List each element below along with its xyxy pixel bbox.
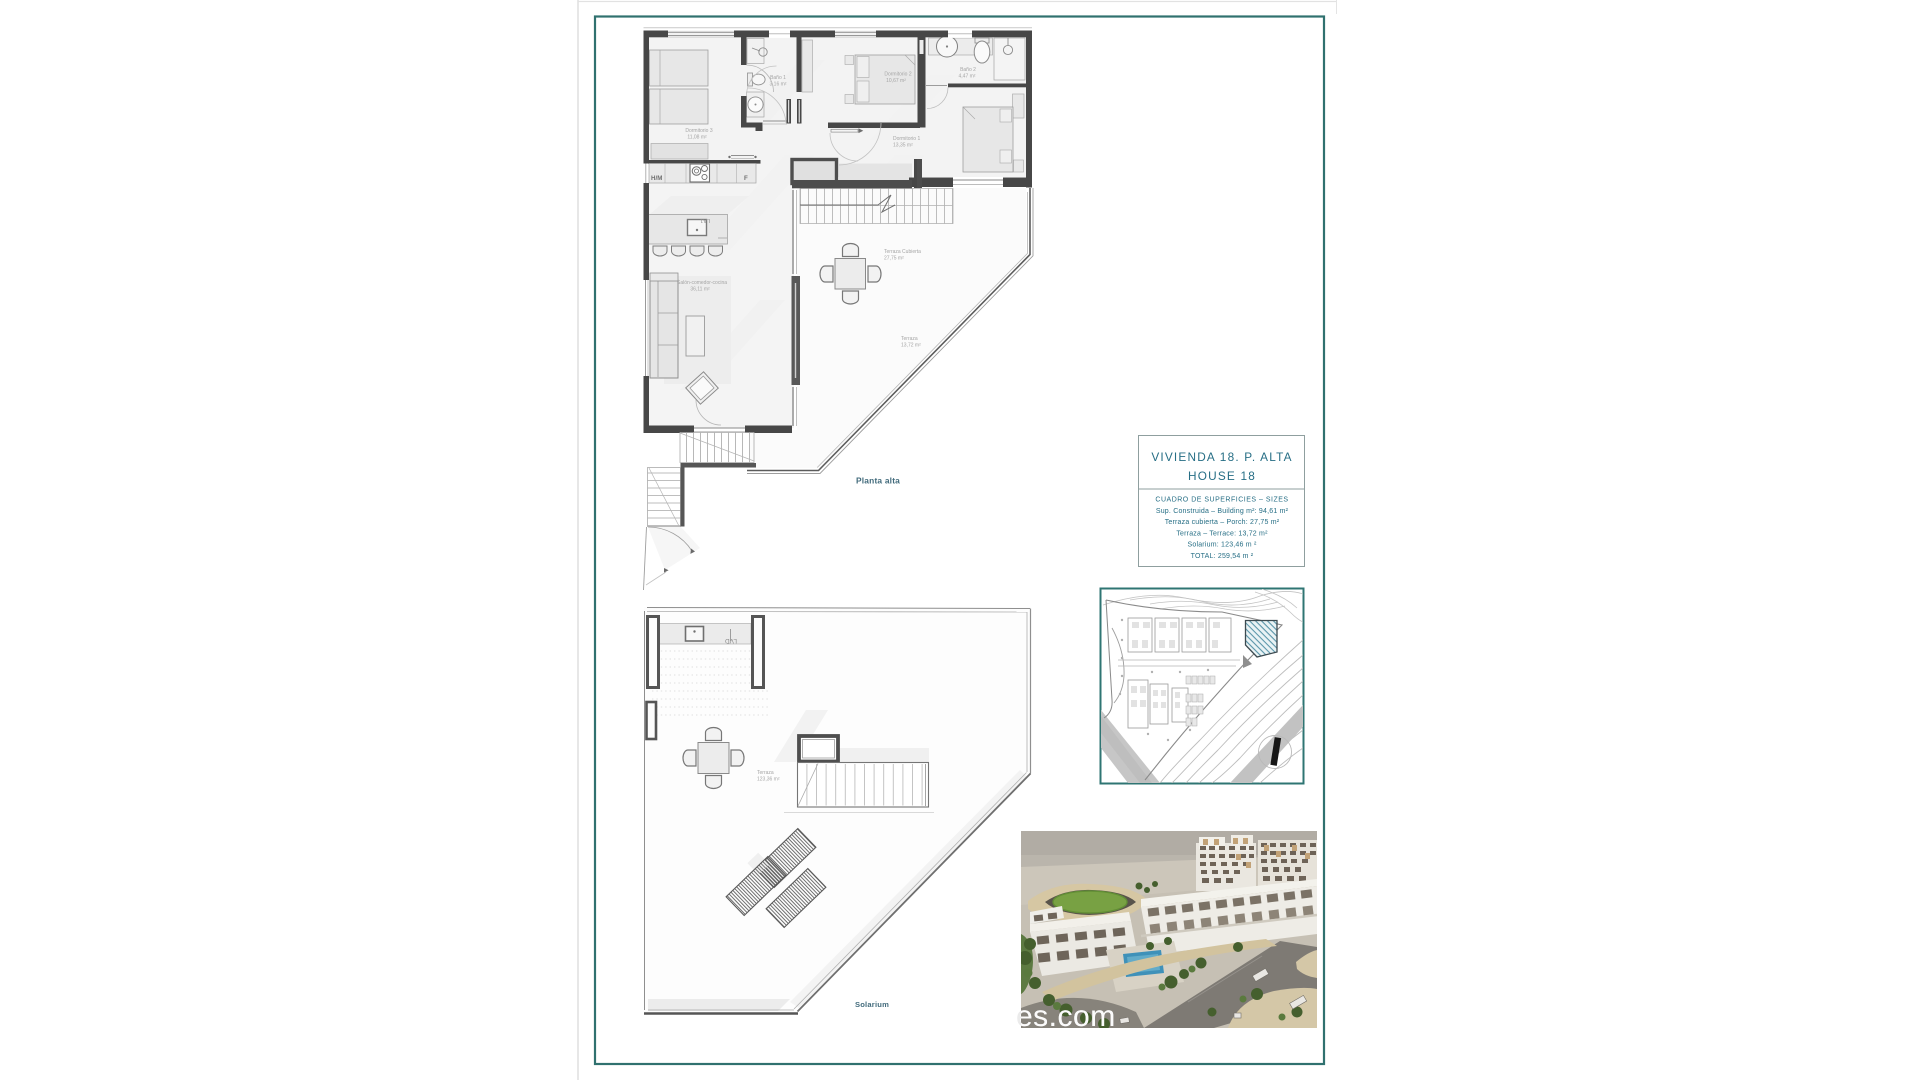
svg-text:LA1: LA1 bbox=[700, 217, 710, 223]
svg-text:27,75 m²: 27,75 m² bbox=[884, 256, 904, 262]
svg-text:36,11 m²: 36,11 m² bbox=[690, 287, 710, 293]
svg-text:4,47 m²: 4,47 m² bbox=[959, 74, 976, 80]
svg-text:HOUSE 18: HOUSE 18 bbox=[1188, 469, 1256, 483]
svg-text:Solarium: 123,46 m ²: Solarium: 123,46 m ² bbox=[1188, 542, 1257, 549]
svg-text:123,36 m²: 123,36 m² bbox=[757, 777, 780, 783]
svg-text:H/M: H/M bbox=[651, 175, 662, 182]
svg-text:Solarium: Solarium bbox=[855, 1000, 889, 1009]
svg-text:13,72 m²: 13,72 m² bbox=[901, 343, 921, 349]
svg-text:VIVIENDA 18. P. ALTA: VIVIENDA 18. P. ALTA bbox=[1151, 450, 1292, 464]
svg-text:CUADRO DE SUPERFICIES – SIZ: CUADRO DE SUPERFICIES – SIZES bbox=[1155, 497, 1288, 504]
svg-text:Terraza Cubierta: Terraza Cubierta bbox=[884, 249, 921, 255]
svg-text:Terraza cubierta – Porch:: Terraza cubierta – Porch: 27,75 m² bbox=[1165, 519, 1280, 526]
svg-text:10,67 m²: 10,67 m² bbox=[886, 78, 906, 84]
svg-text:TOTAL: 259,54 m ²: TOTAL: 259,54 m ² bbox=[1191, 553, 1254, 560]
svg-text:Terraza – Terrace: 13,72 m²: Terraza – Terrace: 13,72 m² bbox=[1176, 530, 1268, 537]
svg-text:F: F bbox=[744, 175, 748, 182]
svg-text:Dormitorio 3: Dormitorio 3 bbox=[685, 128, 712, 134]
svg-text:Terraza: Terraza bbox=[757, 770, 774, 776]
svg-text:Baño 1: Baño 1 bbox=[770, 75, 786, 81]
svg-text:Sup. Construida – Building: Sup. Construida – Building m²: 94,61 m² bbox=[1156, 508, 1289, 515]
svg-text:Dormitorio 1: Dormitorio 1 bbox=[893, 136, 920, 142]
svg-text:Salón-comedor-cocina: Salón-comedor-cocina bbox=[677, 280, 727, 286]
svg-text:Terraza: Terraza bbox=[901, 336, 918, 342]
svg-text:11,08 m²: 11,08 m² bbox=[687, 135, 707, 141]
svg-text:Baño 2: Baño 2 bbox=[960, 67, 976, 73]
svg-text:Dormitorio 2: Dormitorio 2 bbox=[884, 72, 911, 78]
svg-text:Planta alta: Planta alta bbox=[856, 476, 900, 486]
svg-text:13,35 m²: 13,35 m² bbox=[893, 143, 913, 149]
